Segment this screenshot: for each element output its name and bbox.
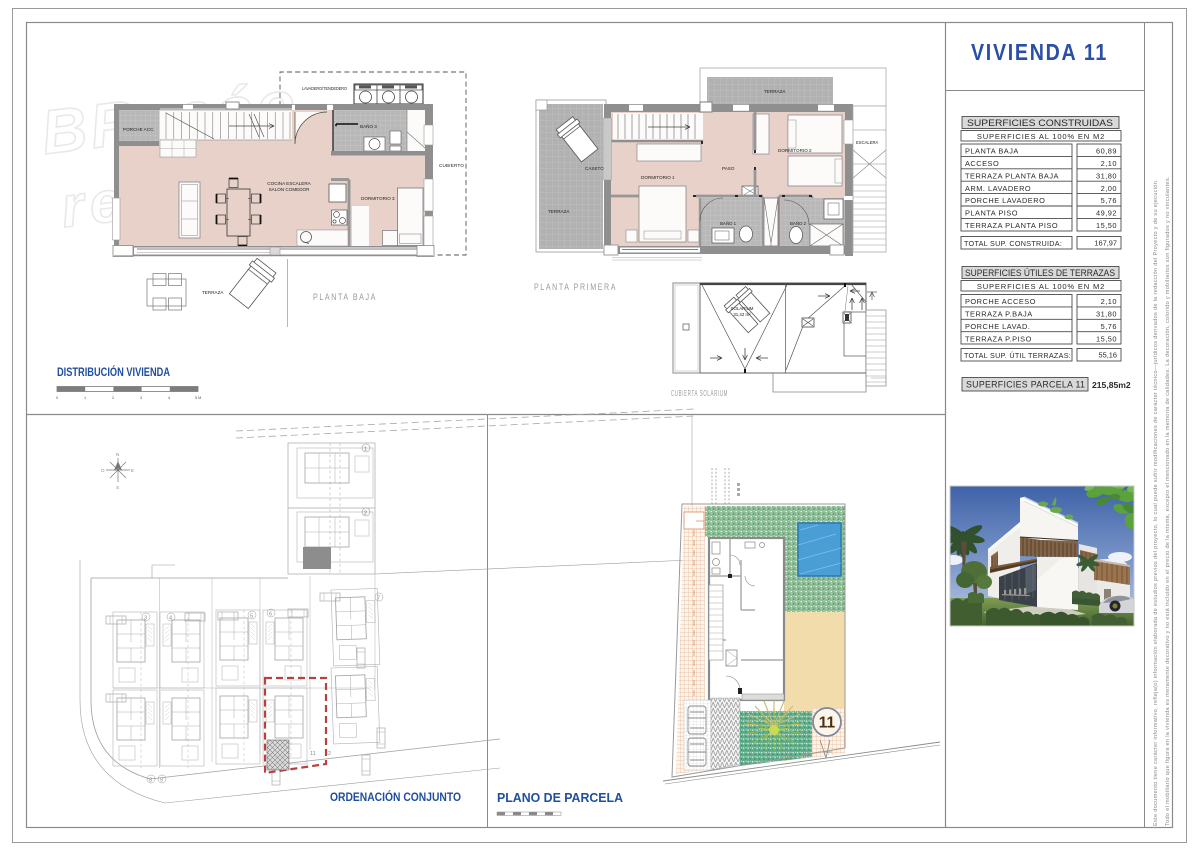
svg-text:15,50: 15,50 — [1096, 221, 1117, 230]
svg-text:5 M: 5 M — [195, 396, 201, 400]
svg-text:ESCALERA: ESCALERA — [856, 140, 879, 145]
svg-text:DORMITORIO 1: DORMITORIO 1 — [641, 175, 675, 180]
svg-text:31,42 m²: 31,42 m² — [733, 312, 751, 317]
svg-text:8: 8 — [149, 778, 152, 784]
svg-text:4: 4 — [168, 396, 170, 400]
svg-text:TOTAL SUP. CONSTRUIDA:: TOTAL SUP. CONSTRUIDA: — [964, 239, 1062, 248]
svg-text:PLANO DE PARCELA: PLANO DE PARCELA — [497, 791, 623, 805]
svg-text:2,10: 2,10 — [1101, 159, 1117, 168]
svg-text:PORCHE ACC.: PORCHE ACC. — [123, 127, 155, 132]
svg-text:2,10: 2,10 — [1101, 297, 1117, 306]
svg-text:1: 1 — [84, 396, 86, 400]
svg-text:TERRAZA: TERRAZA — [764, 89, 786, 94]
svg-text:PORCHE LAVADERO: PORCHE LAVADERO — [965, 196, 1045, 205]
svg-text:VIVIENDA 11: VIVIENDA 11 — [971, 39, 1108, 65]
svg-text:SALON COMEDOR: SALON COMEDOR — [269, 187, 311, 192]
svg-text:SUPERFICIES AL 100% EN M2: SUPERFICIES AL 100% EN M2 — [977, 132, 1105, 141]
svg-text:11: 11 — [819, 715, 836, 732]
svg-text:SUPERFICIES PARCELA 11: SUPERFICIES PARCELA 11 — [966, 380, 1085, 390]
svg-text:BAÑO 1: BAÑO 1 — [720, 221, 737, 226]
svg-text:CUBIERTO: CUBIERTO — [439, 163, 464, 168]
svg-text:TERRAZA P.BAJA: TERRAZA P.BAJA — [965, 310, 1033, 319]
svg-text:5: 5 — [250, 614, 253, 620]
svg-text:DORMITORIO 2: DORMITORIO 2 — [778, 148, 812, 153]
svg-text:167,97: 167,97 — [1094, 238, 1117, 247]
svg-text:SOLARIUM: SOLARIUM — [731, 306, 754, 311]
svg-text:1: 1 — [364, 447, 367, 453]
svg-text:31,80: 31,80 — [1096, 310, 1117, 319]
svg-text:TOTAL SUP. ÚTIL TERRAZAS:: TOTAL SUP. ÚTIL TERRAZAS: — [964, 351, 1071, 360]
svg-text:BAÑO 3: BAÑO 3 — [360, 123, 377, 129]
svg-text:CASETO: CASETO — [585, 166, 604, 171]
svg-text:Todo el mobiliario que figura: Todo el mobiliario que figura en la vivi… — [1165, 176, 1171, 826]
svg-text:11: 11 — [310, 751, 316, 757]
svg-text:SUPERFICIES ÚTILES DE TERRAZAS: SUPERFICIES ÚTILES DE TERRAZAS — [965, 268, 1115, 278]
svg-text:PLANTA PISO: PLANTA PISO — [965, 209, 1018, 218]
svg-text:5,76: 5,76 — [1101, 196, 1117, 205]
svg-text:15,50: 15,50 — [1096, 334, 1117, 343]
svg-text:TERRAZA: TERRAZA — [202, 290, 224, 295]
svg-text:E: E — [131, 468, 134, 473]
svg-text:60,89: 60,89 — [1096, 147, 1117, 156]
svg-text:2,00: 2,00 — [1101, 184, 1117, 193]
svg-text:TERRAZA PLANTA PISO: TERRAZA PLANTA PISO — [965, 221, 1058, 230]
svg-text:ORDENACIÓN CONJUNTO: ORDENACIÓN CONJUNTO — [330, 790, 461, 804]
svg-text:SUPERFICIES AL 100% EN M2: SUPERFICIES AL 100% EN M2 — [977, 282, 1105, 291]
svg-text:49,92: 49,92 — [1096, 209, 1117, 218]
svg-text:SUPERFICIES CONSTRUIDAS: SUPERFICIES CONSTRUIDAS — [967, 118, 1113, 128]
svg-text:4: 4 — [169, 616, 172, 622]
svg-text:7: 7 — [377, 596, 380, 602]
svg-text:TERRAZA: TERRAZA — [548, 209, 570, 214]
svg-text:PLANTA PRIMERA: PLANTA PRIMERA — [534, 282, 617, 292]
svg-text:Este documento tiene carácter: Este documento tiene carácter informativ… — [1153, 179, 1159, 826]
svg-text:5,76: 5,76 — [1101, 322, 1117, 331]
svg-text:PLANTA BAJA: PLANTA BAJA — [313, 292, 377, 302]
svg-text:3: 3 — [144, 616, 147, 622]
svg-text:PLANTA BAJA: PLANTA BAJA — [965, 147, 1019, 156]
svg-text:0: 0 — [56, 396, 58, 400]
svg-text:TERRAZA PLANTA BAJA: TERRAZA PLANTA BAJA — [965, 171, 1059, 180]
svg-text:2: 2 — [364, 511, 367, 517]
svg-text:PORCHE ACCESO: PORCHE ACCESO — [965, 297, 1036, 306]
svg-text:S: S — [116, 485, 119, 490]
svg-text:BAÑO 2: BAÑO 2 — [790, 221, 807, 226]
svg-text:CUBIERTA SOLARIUM: CUBIERTA SOLARIUM — [671, 389, 728, 398]
svg-text:6: 6 — [269, 612, 272, 618]
svg-text:9: 9 — [160, 778, 163, 784]
svg-text:TERRAZA P.PISO: TERRAZA P.PISO — [965, 334, 1032, 343]
svg-text:COCINA ESCALERA: COCINA ESCALERA — [267, 181, 311, 186]
svg-text:DISTRIBUCIÓN VIVIENDA: DISTRIBUCIÓN VIVIENDA — [57, 366, 170, 379]
svg-text:DORMITORIO 3: DORMITORIO 3 — [361, 196, 395, 201]
svg-text:ARM. LAVADERO: ARM. LAVADERO — [965, 184, 1031, 193]
svg-text:215,85m2: 215,85m2 — [1092, 380, 1131, 390]
svg-text:ACCESO: ACCESO — [965, 159, 999, 168]
svg-text:31,80: 31,80 — [1096, 171, 1117, 180]
svg-text:PASO: PASO — [722, 166, 735, 171]
svg-text:55,16: 55,16 — [1099, 350, 1118, 359]
svg-text:LAVADERO/TENDEDERO: LAVADERO/TENDEDERO — [302, 86, 348, 91]
svg-text:2: 2 — [112, 396, 114, 400]
svg-text:N: N — [116, 452, 119, 457]
svg-text:PORCHE LAVAD.: PORCHE LAVAD. — [965, 322, 1030, 331]
svg-text:O: O — [101, 468, 105, 473]
svg-text:3: 3 — [140, 396, 142, 400]
